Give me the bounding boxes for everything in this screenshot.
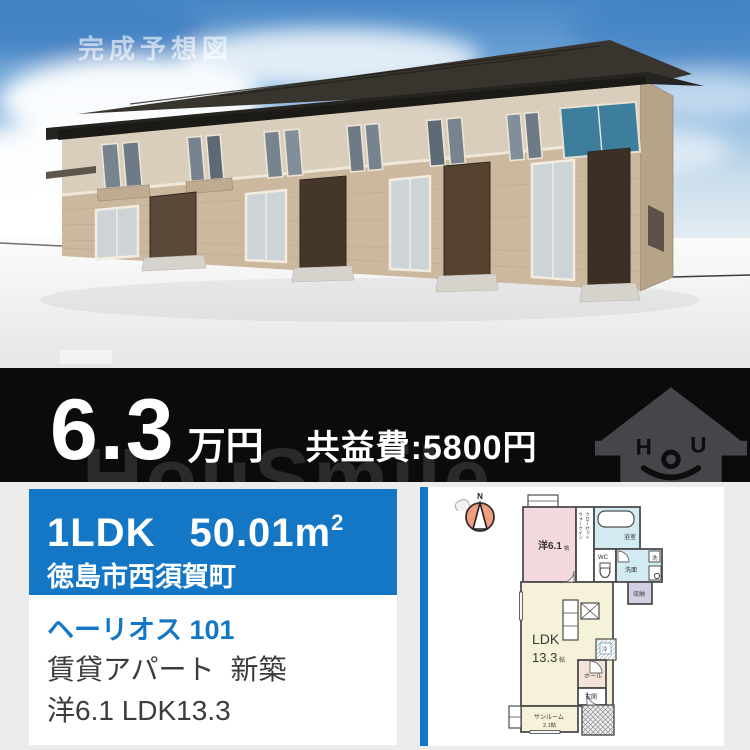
side-window	[648, 205, 664, 252]
label-western: 洋6.1	[538, 539, 562, 552]
label-washroom: 洗面	[625, 566, 637, 574]
listing-details: 1LDK50.01m2 徳島市西須賀町 ヘーリオス 101 賃貸アパート新築 洋…	[0, 482, 750, 750]
label-sunroom-size: 2.1帖	[543, 721, 557, 729]
area-value: 50.01m	[189, 511, 331, 555]
building-render: 完成予想図	[0, 0, 750, 368]
info-card[interactable]: 1LDK50.01m2 徳島市西須賀町 ヘーリオス 101 賃貸アパート新築 洋…	[29, 489, 397, 745]
toilet-tank	[600, 563, 610, 568]
entrance-porch	[582, 705, 614, 735]
maintenance-fee: 共益費:5800円	[306, 420, 538, 469]
property-category-line: 賃貸アパート新築	[47, 649, 397, 690]
floorplan-card[interactable]: N	[420, 487, 724, 746]
logo-eye-right: U	[690, 433, 706, 458]
logo-eye-left: H	[636, 434, 652, 459]
compass-icon: N	[455, 492, 494, 531]
label-wic-2: クローゼット	[585, 512, 591, 540]
label-fridge: 冷	[602, 645, 608, 653]
label-storage: 収納	[633, 590, 645, 598]
address: 徳島市西須賀町	[47, 559, 397, 595]
property-name-link[interactable]: ヘーリオス 101	[47, 611, 397, 649]
window-marker-sunroom	[530, 731, 560, 734]
side-wall	[640, 78, 673, 291]
rooms-summary: 洋6.1 LDK13.3	[47, 690, 397, 731]
label-hall: ホール	[584, 673, 602, 680]
housmile-logo-icon: H U	[595, 384, 747, 482]
price-value: 6.3	[50, 378, 176, 482]
info-card-header: 1LDK50.01m2 徳島市西須賀町	[29, 489, 397, 595]
property-condition: 新築	[230, 654, 286, 685]
window-marker-ldk	[520, 592, 523, 620]
label-ldk: LDK	[532, 631, 560, 647]
bathtub-icon	[598, 511, 634, 527]
label-entrance: 玄関	[585, 693, 597, 701]
photo-watermark: 完成予想図	[78, 34, 233, 64]
property-photo: 完成予想図	[0, 0, 750, 368]
price-unit: 万円	[188, 415, 264, 470]
property-category: 賃貸アパート	[47, 654, 214, 685]
layout-type: 1LDK	[47, 511, 155, 555]
label-wic-1: ウォークイン	[578, 511, 584, 540]
label-wc: WC	[598, 555, 609, 561]
label-sunroom: サンルーム	[534, 714, 564, 721]
label-laundry: 洗	[652, 554, 658, 562]
label-western-unit: 帖	[564, 544, 570, 552]
compass-north-label: N	[477, 492, 483, 501]
kitchen-counter	[563, 600, 578, 640]
floorplan-drawing: N	[428, 487, 724, 746]
area-superscript: 2	[331, 510, 344, 535]
photo-corner-mark	[60, 350, 112, 364]
label-ldk-size: 13.3	[532, 650, 557, 665]
price-line: 6.3 万円 共益費:5800円	[50, 368, 538, 482]
info-card-body: ヘーリオス 101 賃貸アパート新築 洋6.1 LDK13.3	[29, 595, 397, 731]
label-ldk-unit: 帖	[559, 656, 565, 664]
listing-page: 完成予想図 HouSmile 6.3 万円 共益費:5800円 H U 1LDK…	[0, 0, 750, 750]
layout-area-line: 1LDK50.01m2	[47, 499, 397, 557]
label-bath: 浴室	[624, 533, 636, 541]
price-band: HouSmile 6.3 万円 共益費:5800円 H U	[0, 368, 750, 482]
